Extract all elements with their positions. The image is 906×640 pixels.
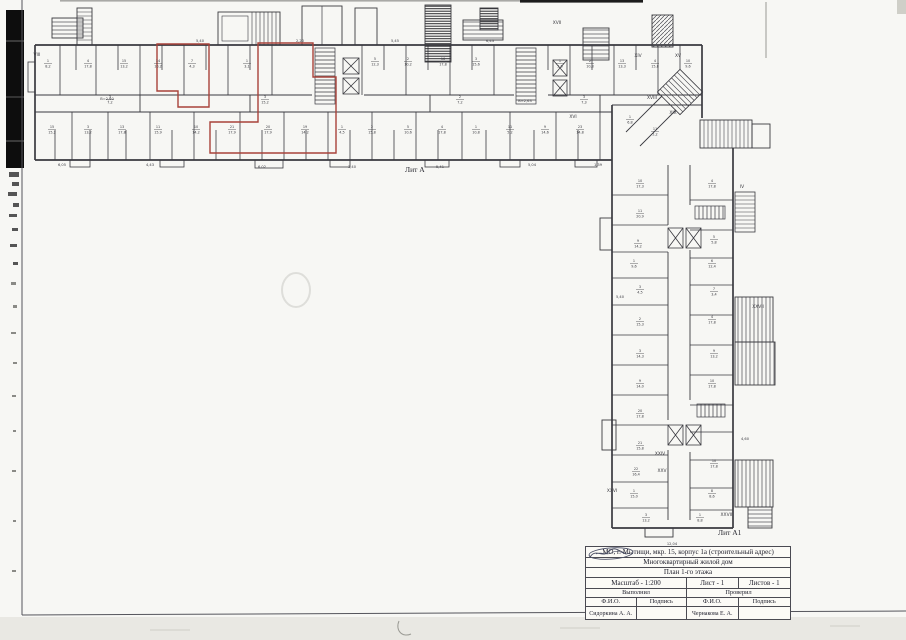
plan-label: 11 [653,127,657,131]
title-block-sheet: Лист - 1 [687,578,739,588]
scanner-artifact-left-band [6,10,24,572]
plan-label: 13,3 [618,64,626,68]
plan-label: 4 [441,125,443,129]
fio-header-right: Ф.И.О. [687,598,739,606]
balcony-bays [600,218,775,537]
elevator-shaft [343,58,359,94]
plan-label: 4,3 [189,64,194,68]
plan-label: 4 [711,179,713,183]
plan-label: 10,8 [472,130,480,134]
plan-label: 10 [194,125,198,129]
plan-label: 7,2 [457,100,462,104]
plan-label: 15,8 [368,130,376,134]
plan-label: XIX [669,110,676,116]
title-block-performed: Выполнил [586,589,687,597]
plan-label: 20 [266,125,270,129]
signature-header-right: Подпись [739,598,790,606]
elevator-shaft [668,228,701,248]
plan-label: 3 [264,95,266,99]
plan-label: 17,8 [708,320,716,324]
plan-label: 2 [407,57,409,61]
plan-label: 15,8 [636,446,644,450]
plan-label: 6,02 [258,165,266,169]
plan-label: 4 [87,59,89,63]
plan-label: 20 [638,409,642,413]
plan-label: 14 [156,59,160,63]
plan-label: 7 [713,287,715,291]
elevator-shaft [668,425,701,445]
plan-label: XXVIII [721,512,734,518]
plan-label: 10,2 [154,64,162,68]
plan-label: 1 [633,489,635,493]
plan-label: 8,6 [709,494,714,498]
litera-a-label: Лит А [405,165,425,174]
plan-label: 9 [637,239,639,243]
plan-label: 3,4 [711,292,716,296]
plan-label: 14,2 [192,130,200,134]
plan-label: 2 [459,95,461,99]
plan-label: XIV [634,53,641,59]
plan-label: 9 [544,125,546,129]
title-block-sheets: Листов - 1 [739,578,791,588]
plan-label: 2,20 [296,39,305,43]
plan-label: 5 [407,125,409,129]
plan-label: 15,8 [651,64,659,68]
plan-label: 5,6 [557,64,562,68]
plan-label: 10,8 [586,64,594,68]
plan-label: 1 [699,513,701,517]
plan-label: XV [675,53,681,59]
plan-label: 6 [711,259,713,263]
plan-label: 4 [711,315,713,319]
plan-label: 7,2 [107,100,112,104]
plan-label: 12,3 [371,62,379,66]
plan-label: 14,2 [634,244,642,248]
plan-label: 11 [508,125,512,129]
plan-label: 2 [371,125,373,129]
plan-label: 3 [87,125,89,129]
plan-label: 10 [686,59,690,63]
plan-label: 15 [50,125,54,129]
plan-label: 17,3 [636,184,644,188]
plan-label: 22 [634,467,638,471]
plan-label: 5,41 [436,165,444,169]
title-block-plan-title: План 1-го этажа [586,568,790,577]
plan-label: 10,2 [404,62,412,66]
plan-label: 10 [712,459,716,463]
plan-label: 5,40 [196,39,205,43]
plan-label: 6,43 [486,39,494,43]
plan-label: 9 [639,379,641,383]
plan-label: 10 [638,179,642,183]
plan-label: 17,8 [118,130,126,134]
plan-label: 15,9 [154,130,162,134]
plan-label: 14,0 [636,384,644,388]
plan-label: 9,6 [631,264,636,268]
plan-label: 16 [441,57,445,61]
plan-label: 15,6 [472,62,480,66]
plan-label: 19 [303,125,307,129]
plan-label: 11 [156,125,160,129]
plan-label: 14,6 [541,130,549,134]
plan-label: XVII [553,20,562,26]
plan-label: В=2,63 [518,99,531,103]
plan-label: 7 [191,59,193,63]
room-area-labels: 18,2417,81513,21410,274,313,1512,3210,21… [44,57,718,522]
scanned-floor-plan-sheet: Лит А Лит А1 18,2417,81513,21410,274,313… [0,0,906,640]
plan-label: 13,2 [710,354,718,358]
plan-label: 8,8 [697,518,702,522]
plan-label: 12,4 [708,264,716,268]
plan-label: 5,40 [616,295,625,299]
balcony-bays [52,5,673,62]
plan-label: 15,2 [261,100,269,104]
plan-label: 1 [47,59,49,63]
plan-label: 6,05 [58,163,66,167]
plan-label: 5 [713,235,715,239]
plan-label: 17,8 [438,130,446,134]
wing-a [28,5,702,168]
plan-label: 7,3 [581,100,586,104]
plan-label: 23 [578,125,582,129]
corner-staircase [657,69,702,114]
plan-label: 16,4 [632,472,640,476]
plan-label: 1 [633,259,635,263]
floor-plan-drawing: Лит А Лит А1 18,2417,81513,21410,274,313… [0,0,906,640]
staircase [315,48,335,104]
plan-label: 5,04 [528,163,537,167]
plan-label: 4,5 [637,290,642,294]
litera-a1-label: Лит А1 [718,528,742,537]
plan-label: 3,1 [244,64,249,68]
plan-label: 17,8 [710,464,718,468]
plan-label: 17,9 [228,130,236,134]
plan-label: 15,3 [636,322,644,326]
plan-label: 1 [629,115,631,119]
plan-label: 9 [713,349,715,353]
plan-label: 2 [639,317,641,321]
plan-label: 3 [645,513,647,517]
title-block: МО, г. Мытищи, мкр. 15, корпус 1а (строи… [585,546,791,620]
plan-label: 6,8 [627,120,632,124]
plan-label: 17,9 [264,130,272,134]
exterior-stair [735,192,755,232]
plan-label: 8 [711,489,713,493]
plan-label: 13,2 [120,64,128,68]
plan-label: 3 [639,285,641,289]
plan-label: 1 [559,59,561,63]
checker-name: Чернакова Е. А. [687,607,739,620]
plan-label: 21 [230,125,234,129]
dimension-labels: 6,054,436,023,405,415,041,3912,045,404,6… [58,39,750,546]
plan-label: 4,43 [146,163,154,167]
plan-label: 20,9 [636,214,644,218]
plan-label: 4,60 [741,437,750,441]
plan-label: 1 [246,59,248,63]
plan-label: 21 [638,441,642,445]
plan-label: XVI [569,114,576,120]
plan-label: 17,8 [84,64,92,68]
wing-a1 [600,69,775,537]
pen-mark [398,621,411,635]
title-block-scale: Масштаб - 1:200 [586,578,687,588]
fio-header-left: Ф.И.О. [586,598,637,606]
staircase [695,206,725,219]
plan-label: 17,8 [708,384,716,388]
plan-label: XVIII [647,95,657,101]
plan-label: В=2,60 [100,97,114,101]
plan-label: 5 [374,57,376,61]
staircase [516,48,536,104]
plan-label: 1 [341,125,343,129]
plan-label: 5,2 [507,130,512,134]
plan-label: 11 [638,209,642,213]
plan-label: 14,3 [636,354,644,358]
signature-header-left: Подпись [637,598,688,606]
plan-label: 3 [583,95,585,99]
plan-label: 5,8 [711,240,716,244]
plan-label: 3 [639,349,641,353]
title-block-checked: Проверил [687,589,790,597]
plan-label: 14,8 [576,130,584,134]
plan-label: 4,5 [339,130,344,134]
plan-label: 13,2 [642,518,650,522]
performer-name: Сидоркина А. А. [586,607,637,620]
plan-label: 4 [654,59,656,63]
plan-label: 13,2 [84,130,92,134]
plan-label: 17,8 [439,62,447,66]
plan-label: 17,8 [636,414,644,418]
plan-label: XXIV [655,451,665,457]
plan-label: 10 [710,379,714,383]
plan-label: 1,39 [594,163,603,167]
plan-label: 5,2 [652,132,657,136]
plan-label: 9,6 [685,64,690,68]
plan-label: 3 [475,57,477,61]
plan-label: VIII [34,52,41,58]
plan-label: 15,2 [48,130,56,134]
plan-label: 5,45 [391,39,399,43]
plan-label: 13 [620,59,624,63]
plan-label: 2 [589,59,591,63]
performer-signature [637,607,688,620]
plan-label: 15 [122,59,126,63]
plan-label: XXVII [752,304,764,310]
plan-label: 13 [120,125,124,129]
plan-label: XXVI [607,488,617,494]
plan-label: 14,2 [301,130,309,134]
plan-label: 3,40 [348,165,357,169]
plan-label: IV [740,184,744,190]
plan-label: 15,0 [630,494,638,498]
plan-label: 10,6 [404,130,412,134]
plan-label: 1 [475,125,477,129]
plan-label: XXV [657,468,666,474]
checker-stamp [739,607,790,620]
staircase [697,404,725,417]
scan-smudge-bottom [150,626,860,630]
plan-label: 8,2 [45,64,50,68]
plan-label: 17,8 [708,184,716,188]
scan-smudge [282,273,310,307]
